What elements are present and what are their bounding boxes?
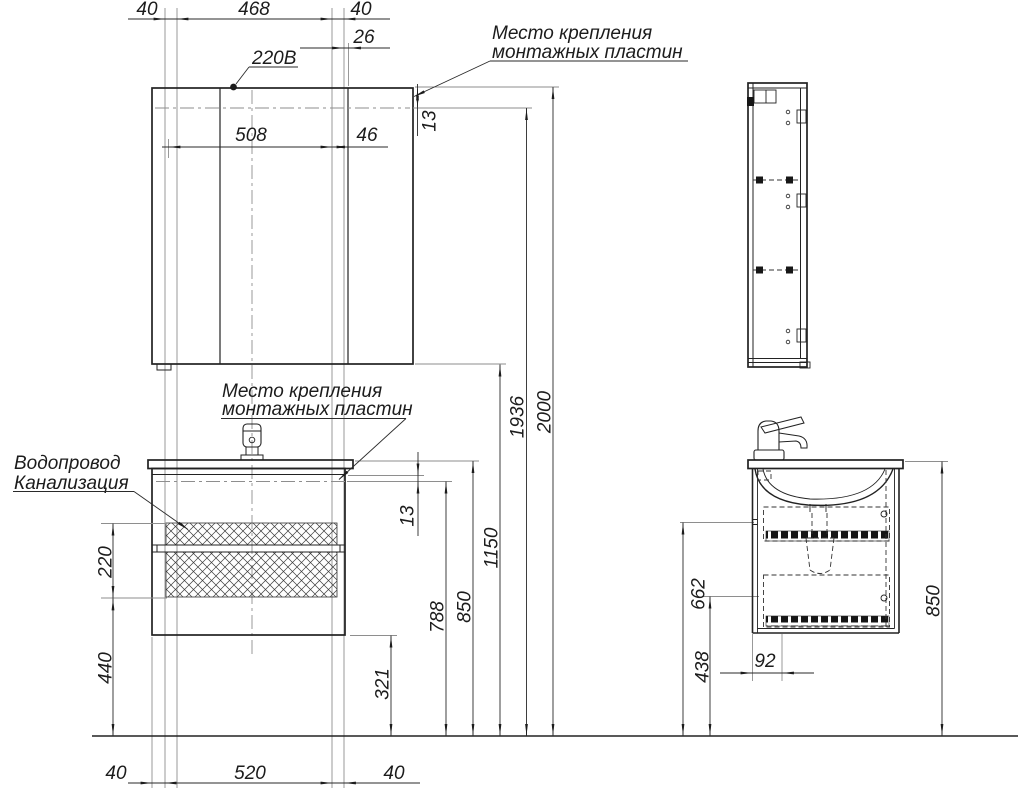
dim-40-bottom-right: 40 xyxy=(383,763,405,784)
shelf-lines xyxy=(753,177,800,274)
dim-13-vanity: 13 xyxy=(398,505,419,527)
dimensions-front-bottom: 40 520 40 xyxy=(105,763,420,784)
dim-850-front: 850 xyxy=(455,591,476,623)
dim-2000: 2000 xyxy=(535,390,556,434)
mounting-top-label-line2: монтажных пластин xyxy=(492,42,683,63)
dim-13-mirror: 13 xyxy=(420,110,441,132)
vanity-front-view xyxy=(148,424,353,635)
dim-662: 662 xyxy=(689,578,710,610)
dim-1936: 1936 xyxy=(508,395,529,438)
drawer-internals xyxy=(758,470,890,628)
dim-321: 321 xyxy=(373,668,394,700)
dim-508: 508 xyxy=(235,125,267,146)
dimensions-front-right: 13 788 850 1150 1936 2000 xyxy=(398,87,556,736)
mounting-top-label-line1: Место крепления xyxy=(492,23,652,44)
plumbing-label-line1: Водопровод xyxy=(14,453,120,474)
dim-520: 520 xyxy=(234,763,266,784)
faucet-side xyxy=(754,417,807,460)
label-voltage-group: 220В xyxy=(236,48,298,84)
dim-468: 468 xyxy=(238,0,270,20)
dim-40-top-left: 40 xyxy=(136,0,158,20)
dim-440: 440 xyxy=(96,652,117,684)
dim-438: 438 xyxy=(693,651,714,683)
plumbing-zone-hatch-lower xyxy=(166,552,337,597)
label-mounting-top-group: Место крепления монтажных пластин xyxy=(414,23,688,97)
mounting-mid-label-line2: монтажных пластин xyxy=(222,399,413,420)
label-mounting-mid-group: Место крепления монтажных пластин xyxy=(221,381,413,480)
installation-drawing-page: 40 468 40 26 508 46 13 13 788 850 xyxy=(0,0,1025,800)
dim-92: 92 xyxy=(754,651,776,672)
vanity-side-view xyxy=(748,417,903,633)
dim-220: 220 xyxy=(96,546,117,579)
dim-46: 46 xyxy=(356,125,378,146)
dimensions-side-view: 662 438 92 850 xyxy=(683,462,945,737)
dim-850-side: 850 xyxy=(924,585,945,617)
label-plumbing-group: Водопровод Канализация xyxy=(13,453,188,530)
basin-profile xyxy=(755,469,893,512)
dim-26: 26 xyxy=(352,27,375,48)
dim-40-bottom-left: 40 xyxy=(105,763,127,784)
dim-40-top-right: 40 xyxy=(350,0,372,20)
wall-hangers xyxy=(786,110,806,344)
voltage-label: 220В xyxy=(251,48,297,69)
dim-1150: 1150 xyxy=(482,527,503,568)
dimensions-front-top: 40 468 40 26 508 46 13 xyxy=(128,0,441,147)
mirror-cabinet-side-view xyxy=(747,83,810,368)
dim-788: 788 xyxy=(428,601,449,633)
power-outlet-point xyxy=(230,84,237,91)
plumbing-zone-hatch-upper xyxy=(166,523,337,545)
plumbing-label-line2: Канализация xyxy=(14,473,129,494)
installation-drawing: 40 468 40 26 508 46 13 13 788 850 xyxy=(0,0,1025,800)
